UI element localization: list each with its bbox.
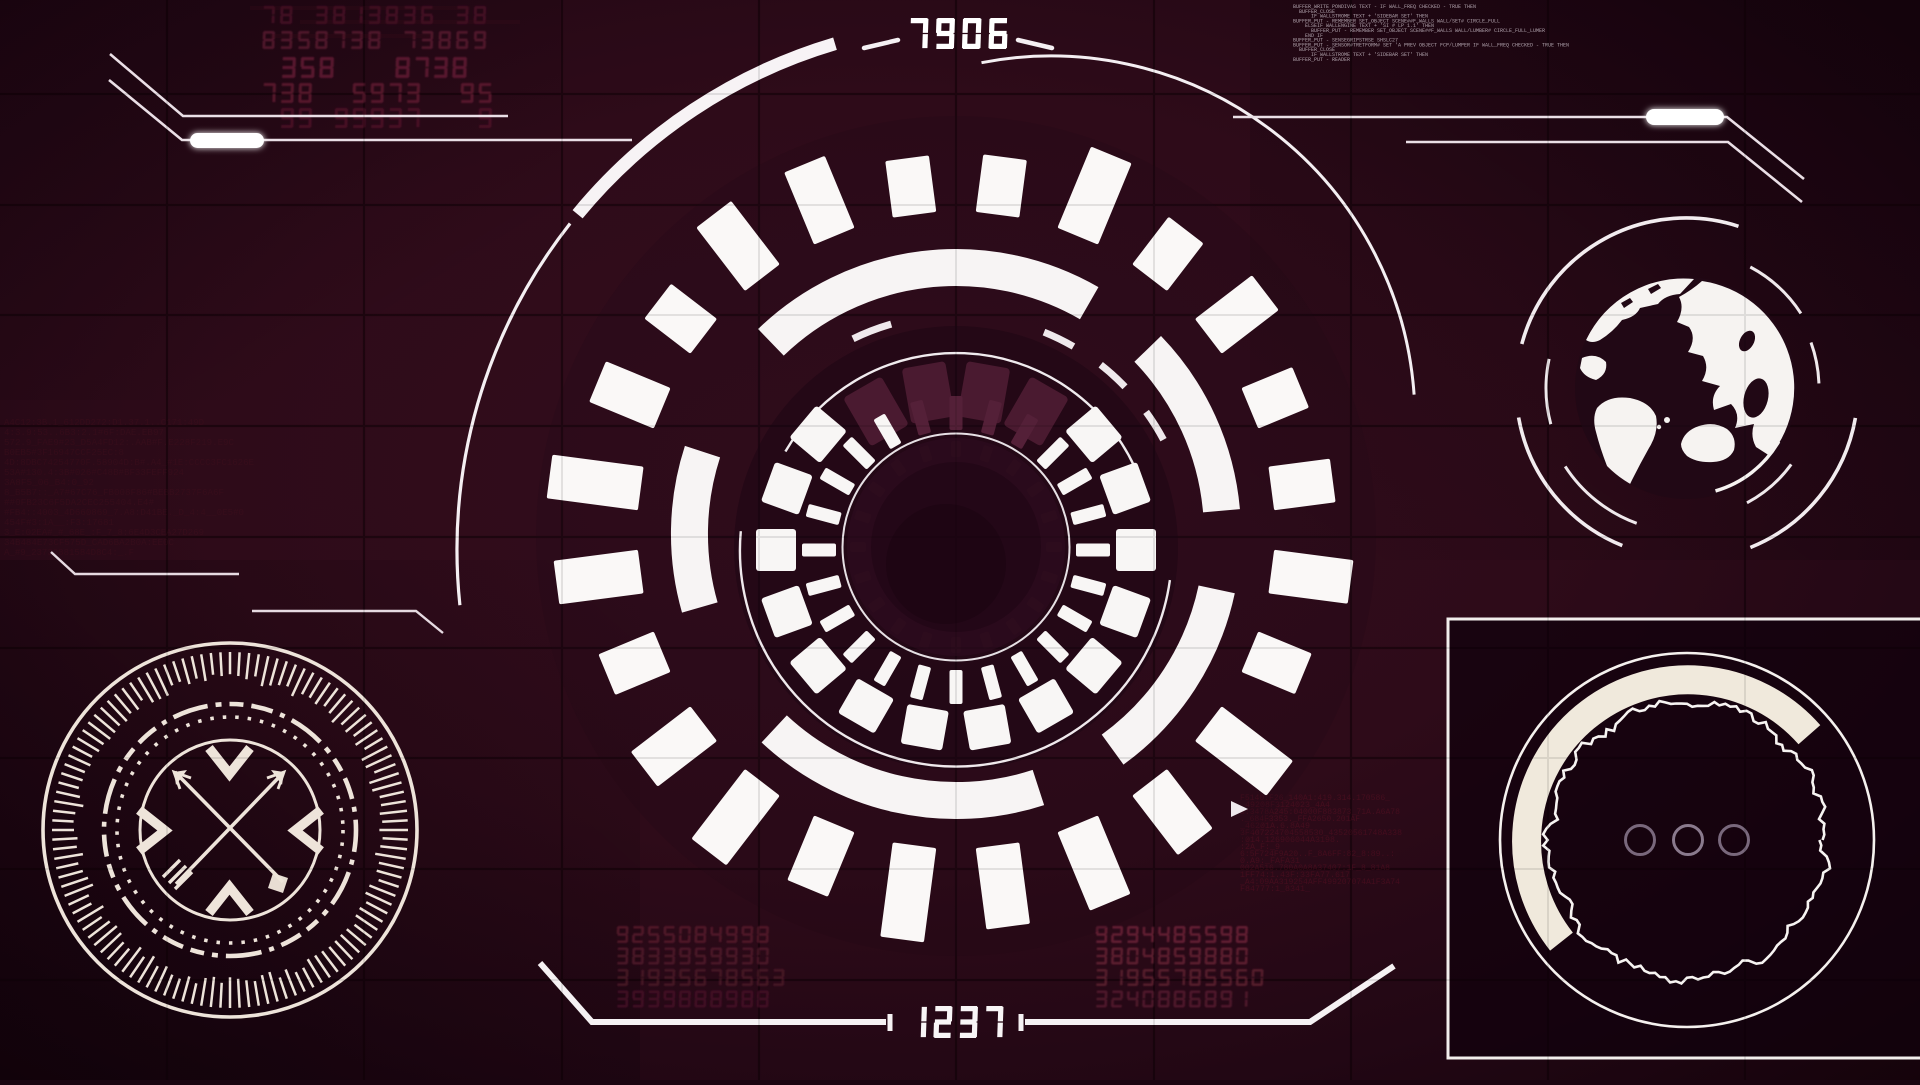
svg-text:##0FB23C6F5DA2CEC255404.E4#: ##0FB23C6F5DA2CEC255404.E4# — [4, 498, 155, 508]
svg-text:4D:8DBC74254770F.58904D:B#.A4_: 4D:8DBC74254770F.58904D:B#.A4_#1E:CCCC3F… — [4, 458, 254, 468]
svg-text:4:3.9:53..6B3:2.1#6F:DAE.EB97: 4:3.9:53..6B3:2.1#6F:DAE.EB97 — [4, 428, 164, 438]
svg-text:#FB4::4003_4D660869_7.A8:D41BE: #FB4::4003_4D660869_7.A8:D41BE._D_4:4__0… — [4, 508, 244, 518]
svg-text:F84777:1_8341_: F84777:1_8341_ — [1240, 885, 1310, 894]
svg-text:34B484E73CF575D_CAD6BA2B0A:EE0: 34B484E73CF575D_CAD6BA2B0A:EE0C — [4, 538, 175, 548]
svg-text:8_B5B7::_A7#67C76_FB008F86#BEB: 8_B5B7::_A7#67C76_FB008F86#BEBB2737F6A6F — [4, 488, 224, 498]
svg-text:572.9_FAE9#23_D5A4FD12:.AAB#F.: 572.9_FAE9#23_D5A4FD12:.AAB#F.E228F219.E… — [4, 438, 235, 448]
svg-text:BUFFER_PUT - REMEMBER SET_OBJE: BUFFER_PUT - REMEMBER SET_OBJECT SCENE##… — [1311, 28, 1545, 34]
svg-text:53A#130.4:3B#026#C48B#BF33FEFF: 53A#130.4:3B#026#C48B#BF33FEFF924 — [4, 468, 184, 478]
svg-text:454F#3:1A__:F3:17681: 454F#3:1A__:F3:17681 — [4, 518, 114, 528]
svg-text:BUFFER_PUT - READER: BUFFER_PUT - READER — [1293, 57, 1350, 63]
svg-text:B0EB5#3F16947CCF25EC:8: B0EB5#3F16947CCF25EC:8 — [4, 448, 124, 458]
svg-text:A_#9_23732881584D8C4:_.F: A_#9_23732881584D8C4:_.F — [4, 548, 134, 558]
svg-text:3A8F5_06_B4:0_92: 3A8F5_06_B4:0_92 — [4, 478, 94, 488]
